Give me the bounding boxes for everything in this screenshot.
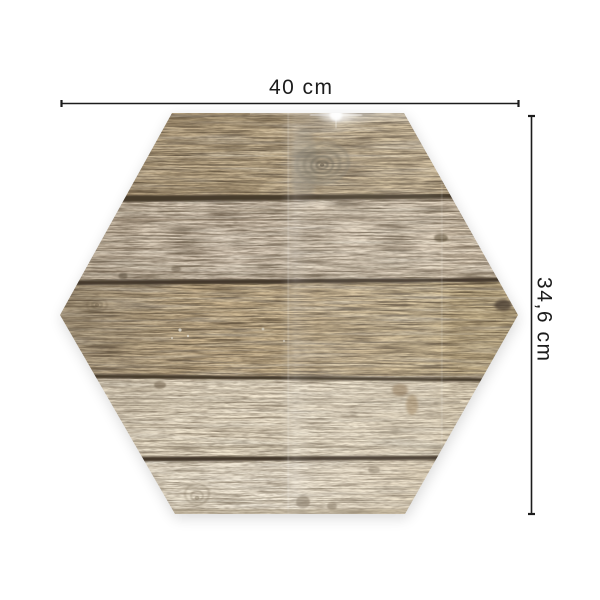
svg-text:34,6 cm: 34,6 cm bbox=[533, 277, 556, 361]
svg-text:40 cm: 40 cm bbox=[269, 76, 332, 99]
